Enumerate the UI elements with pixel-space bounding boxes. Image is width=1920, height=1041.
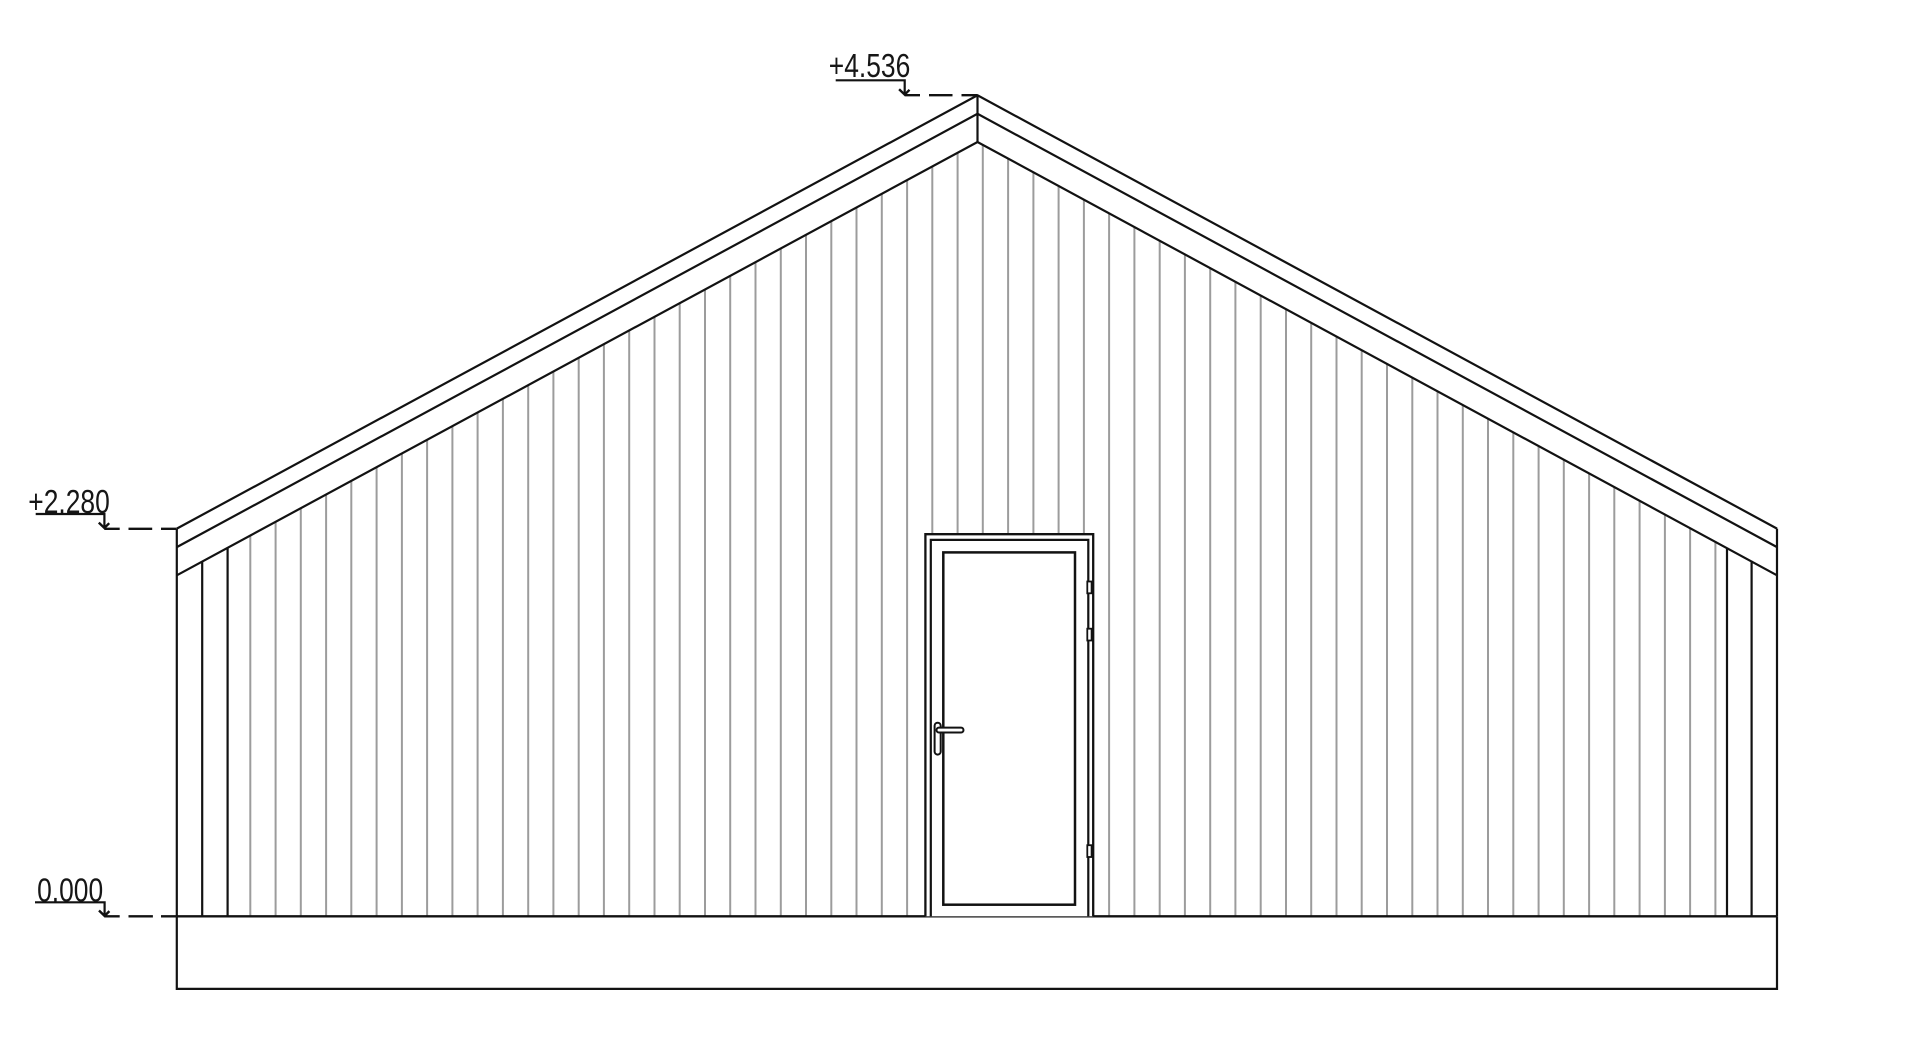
svg-text:0.000: 0.000 — [37, 873, 103, 909]
svg-text:+2.280: +2.280 — [28, 484, 109, 520]
